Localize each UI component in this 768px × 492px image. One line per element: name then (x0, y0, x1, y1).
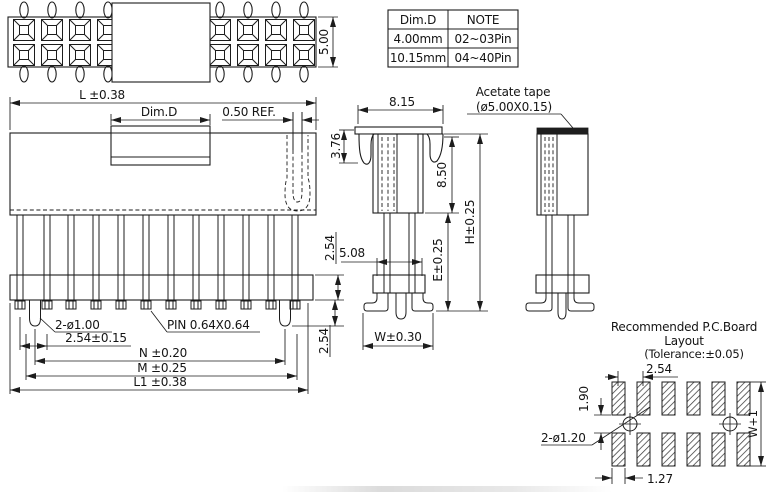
dim-peg-callout: 2-ø1.00 (55, 318, 100, 332)
dim-top-width: 8.15 (389, 95, 415, 109)
dim-pcb-row-gap: 1.90 (577, 386, 591, 412)
dim-top-height: 5.00 (317, 29, 331, 55)
dim-m: M ±0.25 (137, 361, 187, 375)
tape-strip (111, 126, 210, 165)
dim-tape-width: Dim.D (141, 105, 177, 119)
table-header-dim: Dim.D (400, 13, 436, 27)
pcb-title-line2: Layout (664, 334, 704, 348)
dim-e: E±0.25 (431, 238, 445, 281)
table-cell-note-1: 02~03Pin (455, 32, 512, 46)
acetate-tape-label: Acetate tape (476, 85, 551, 99)
front-view: L ±0.38 Dim.D 0.50 REF. 2.54 2.54 2-ø1.0… (10, 88, 344, 394)
acetate-tape-strip (537, 128, 588, 134)
dim-pcb-holes: 2-ø1.20 (541, 431, 586, 445)
table-header-note: NOTE (467, 13, 500, 27)
acetate-tape-size: (ø5.00X0.15) (476, 100, 552, 114)
technical-drawing-page: 5.00 Dim.D NOTE 4.00mm 02~03Pin 10.15mm … (0, 0, 768, 492)
dim-pcb-pitch: 2.54 (646, 362, 672, 376)
dim-w: W±0.30 (374, 330, 421, 344)
dim-l1: L1 ±0.38 (133, 375, 186, 389)
dim-contact-ref: 0.50 REF. (222, 105, 275, 119)
pcb-title-line1: Recommended P.C.Board (611, 320, 757, 334)
board-lock-peg-right (280, 300, 291, 326)
table-cell-dim-2: 10.15mm (390, 51, 446, 65)
watermark-smudge (282, 486, 612, 492)
dim-n: N ±0.20 (139, 346, 187, 360)
dim-table: Dim.D NOTE 4.00mm 02~03Pin 10.15mm 04~40… (388, 10, 518, 67)
dim-pitch-lower: 2.54 (317, 328, 331, 354)
drawing-canvas: 5.00 Dim.D NOTE 4.00mm 02~03Pin 10.15mm … (0, 0, 768, 492)
tape-view: Acetate tape (ø5.00X0.15) (467, 85, 594, 319)
side-view: 8.15 3.76 8.50 H±0.25 E±0.25 5.08 W±0.30 (329, 95, 488, 350)
dim-height: H±0.25 (463, 200, 477, 245)
pcb-title-line3: (Tolerance:±0.05) (644, 347, 744, 361)
pcb-layout: Recommended P.C.Board Layout (Tolerance:… (541, 320, 766, 486)
dim-pin-callout: PIN 0.64X0.64 (167, 318, 250, 332)
dim-overall-length: L ±0.38 (79, 88, 125, 102)
board-lock-peg-left (30, 300, 41, 326)
table-cell-dim-1: 4.00mm (394, 32, 443, 46)
dim-pitch-upper: 2.54 (323, 235, 337, 261)
dim-pin-pitch: 2.54±0.15 (65, 331, 127, 345)
table-cell-note-2: 04~40Pin (455, 51, 512, 65)
dim-pcb-w1: W+1 (746, 410, 760, 438)
top-view: 5.00 (8, 2, 338, 82)
polarization-block (112, 3, 210, 82)
dim-pcb-pad-width: 1.27 (647, 472, 673, 486)
dim-body-depth: 8.50 (435, 162, 449, 188)
dim-leg-span: 5.08 (339, 246, 365, 260)
dim-latch-height: 3.76 (329, 133, 343, 159)
